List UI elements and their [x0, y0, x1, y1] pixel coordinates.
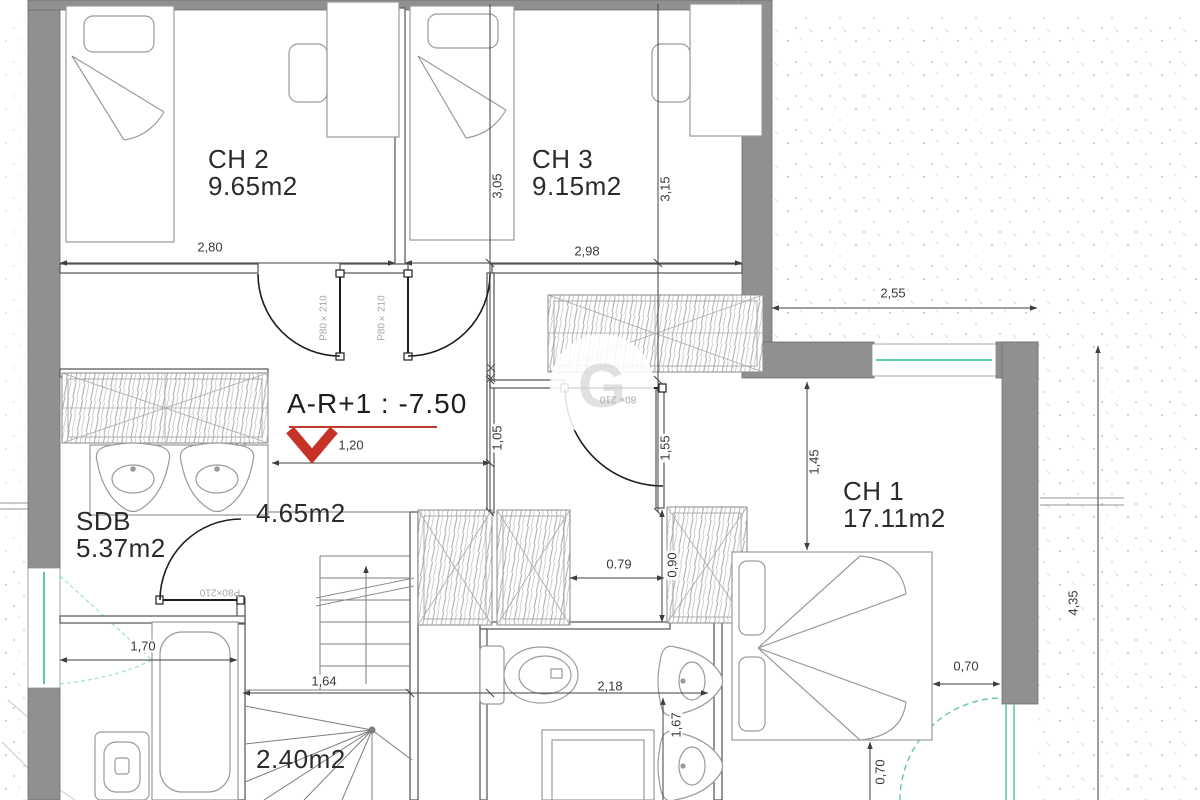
- dim-right-boundary: 4,35: [1067, 588, 1080, 617]
- door-label-ch2: P80×210: [319, 295, 330, 340]
- level-marker-text: A-R+1 : -7.50: [287, 388, 467, 420]
- dim-hall-seg-right: 1,55: [659, 433, 672, 462]
- dim-bed-to-front: 0,70: [874, 757, 887, 786]
- wc-sink-bottom: [658, 731, 723, 800]
- vanity-sdb: [90, 443, 268, 515]
- door-label-ch3: P80×210: [377, 295, 388, 340]
- dim-wc-depth: 1,67: [670, 710, 683, 739]
- room-name-ch1: CH 1: [843, 478, 946, 505]
- room-name-sdb: SDB: [76, 508, 166, 535]
- dim-hall-width: 1,20: [336, 439, 365, 452]
- room-area-ch2: 9.65m2: [208, 173, 298, 200]
- desk-ch2: [289, 2, 399, 137]
- wc-sink-top: [658, 646, 723, 715]
- room-area-hallway: 4.65m2: [256, 500, 346, 527]
- desk-ch3: [652, 4, 762, 136]
- dim-stair-width: 1,64: [309, 675, 338, 688]
- room-label-ch2: CH 2 9.65m2: [208, 146, 298, 201]
- dim-bed-to-wall: 0,70: [951, 660, 980, 673]
- shower: [542, 730, 654, 800]
- door-label-sdb: P80×210: [200, 587, 240, 598]
- bed-ch3: [410, 6, 514, 240]
- closet-left: [418, 510, 492, 625]
- watermark-logo: G: [550, 334, 654, 438]
- dim-ch2-width: 2,80: [195, 241, 224, 254]
- room-area-ch1: 17.11m2: [843, 505, 946, 532]
- room-label-ch3: CH 3 9.15m2: [532, 146, 622, 201]
- dim-terrace-width: 2,55: [878, 287, 907, 300]
- door-ch3: [404, 270, 490, 360]
- door-label-ch1: 80× 210: [600, 394, 636, 405]
- level-marker-arrow: [290, 430, 334, 456]
- room-label-ch1: CH 1 17.11m2: [843, 478, 946, 533]
- room-name-ch3: CH 3: [532, 146, 622, 173]
- room-area-stairwell: 2.40m2: [256, 746, 346, 773]
- closet-mid: [497, 510, 570, 625]
- room-area-sdb: 5.37m2: [76, 535, 166, 562]
- room-label-sdb: SDB 5.37m2: [76, 508, 166, 563]
- bed-ch2: [66, 6, 174, 242]
- dim-sdb-clear: 1,70: [128, 640, 157, 653]
- door-ch2: [258, 270, 344, 360]
- closet-sdb: [62, 373, 268, 443]
- dim-ch2-depth: 3,05: [491, 171, 504, 200]
- dim-closet-depth: 0,90: [666, 550, 679, 579]
- room-area-ch3: 9.15m2: [532, 173, 622, 200]
- bed-ch1: [732, 552, 932, 740]
- watermark-letter: G: [578, 351, 626, 422]
- dim-closet-gap: 0.79: [604, 558, 633, 571]
- room-label-hallway: 4.65m2: [256, 500, 346, 527]
- room-name-ch2: CH 2: [208, 146, 298, 173]
- toilet: [480, 646, 578, 704]
- room-label-stairwell: 2.40m2: [256, 746, 346, 773]
- floor-plan: G CH 2 9.65m2 CH 3 9.15m2 CH 1 17.11m2 S…: [0, 0, 1200, 800]
- dim-ch3-depth: 3,15: [659, 174, 672, 203]
- dim-ch3-width: 2,98: [572, 245, 601, 258]
- washbasin-unit: [95, 732, 149, 800]
- dim-wc-width: 2,18: [595, 680, 624, 693]
- dim-ch1-entry: 1,45: [808, 447, 821, 476]
- dim-hall-seg-left: 1,05: [491, 423, 504, 452]
- bathtub: [152, 622, 238, 800]
- level-marker-underline: [289, 426, 437, 428]
